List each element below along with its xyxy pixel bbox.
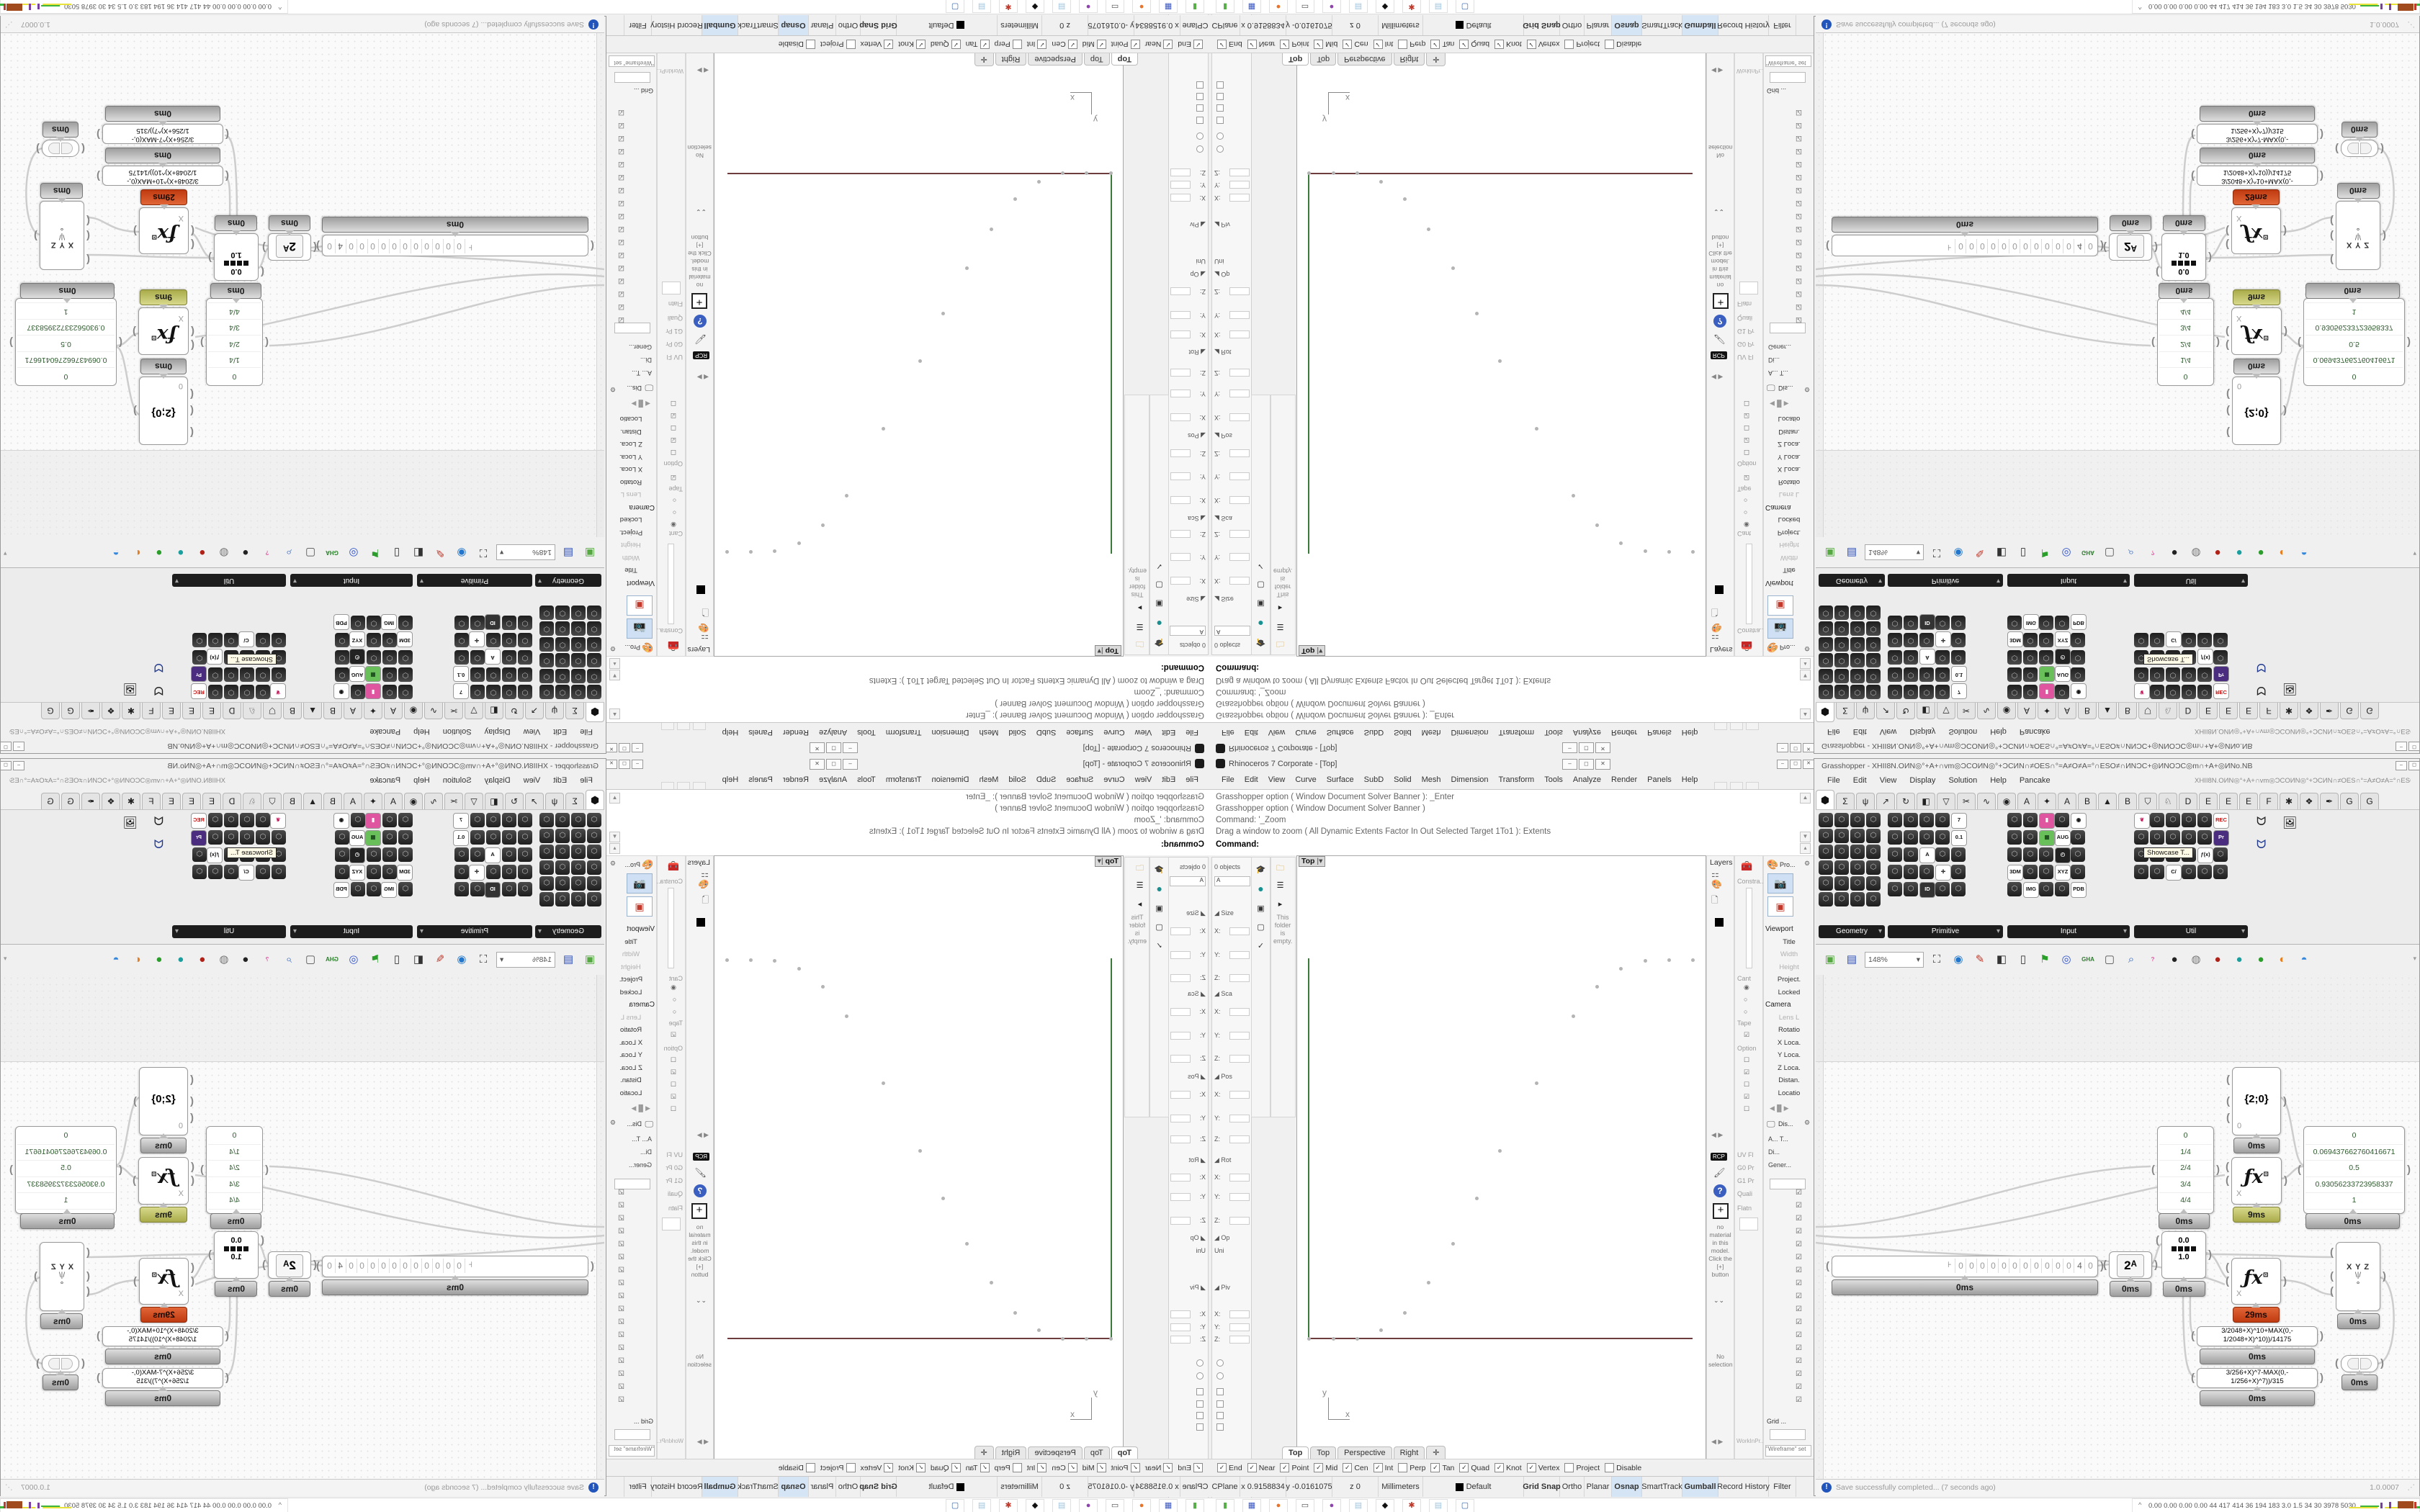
display-checkbox[interactable]: ☑ — [1796, 1202, 1802, 1210]
gh-tab-4[interactable]: ↻ — [1896, 703, 1915, 719]
display-checkbox[interactable]: ☑ — [618, 251, 624, 258]
component-icon[interactable]: ⬡ — [2039, 865, 2053, 879]
status-filter[interactable]: Filter — [1769, 1477, 1796, 1497]
component-icon[interactable]: ⬡ — [1850, 845, 1865, 859]
sketch-pen-icon[interactable]: ✎ — [1971, 544, 1989, 561]
viewport-tab-top[interactable]: Top — [1111, 1446, 1138, 1459]
easel-icon[interactable]: 🖼 — [123, 682, 138, 696]
gh-tab-17[interactable]: ♘ — [243, 793, 261, 809]
component-icon[interactable]: ⬡ — [1888, 685, 1902, 699]
gh-tab-15[interactable]: B — [283, 793, 302, 809]
panel-scroll-arrows[interactable]: ◀ ▶ — [697, 373, 709, 381]
boxedit-input[interactable] — [1229, 1091, 1250, 1099]
rhino-menu-analyze[interactable]: Analyze — [1573, 723, 1601, 737]
notepad-icon[interactable]: ▤ — [1349, 0, 1368, 13]
monitor-icon[interactable]: ▭ — [1296, 1499, 1314, 1512]
component-icon[interactable]: ⬡ — [539, 813, 554, 827]
new-doc-icon[interactable]: ▣ — [581, 544, 599, 561]
component-icon[interactable]: ⬡ — [224, 633, 238, 647]
new-doc-icon[interactable]: ▣ — [1821, 951, 1839, 968]
gh-menu-edit[interactable]: Edit — [553, 776, 567, 785]
component-icon[interactable]: ⬡ — [571, 813, 586, 827]
component-icon[interactable]: ⬡ — [539, 860, 554, 875]
gh-tab-26[interactable]: G — [61, 793, 80, 809]
display-checkbox[interactable]: ☑ — [1796, 121, 1802, 129]
status-gumball[interactable]: Gumball — [1682, 15, 1718, 35]
component-icon[interactable]: ⬡ — [587, 813, 601, 827]
component-icon[interactable]: ⬡ — [2023, 650, 2038, 665]
minimize-button[interactable]: – — [1562, 742, 1577, 753]
component-icon[interactable]: ⬡ — [571, 845, 586, 859]
osnap-item[interactable]: ✓Mid — [1314, 1463, 1337, 1472]
boxedit-input[interactable] — [1170, 1135, 1191, 1143]
component-icon[interactable]: ⬡ — [571, 621, 586, 636]
boxedit-dropdown[interactable]: A — [1214, 876, 1250, 886]
component-icon[interactable]: ⬡ — [2039, 882, 2053, 896]
osnap-item[interactable]: ✓Mid — [1083, 1463, 1106, 1472]
display-checkbox[interactable]: ☑ — [618, 160, 624, 168]
component-icon[interactable]: ƒ(x) — [2197, 649, 2213, 665]
zoom-select[interactable]: 148%▾ — [1865, 952, 1924, 968]
osnap-item[interactable]: ✓Knot — [898, 40, 926, 49]
layer-color-icon[interactable]: 🎨 — [698, 879, 709, 889]
zoom-dollar-icon[interactable]: ⌕ — [2123, 544, 2140, 561]
layer-swatch-black[interactable] — [1715, 585, 1724, 594]
status-cplane[interactable]: CPlane — [1180, 1477, 1210, 1497]
gh-tab-26[interactable]: G — [2340, 703, 2359, 719]
wireframe-set-box[interactable]: "Wireframe" set — [1765, 1445, 1811, 1457]
gh-tab-15[interactable]: B — [2118, 793, 2137, 809]
gh-tab-0[interactable]: ⬢ — [586, 790, 604, 809]
command-scroll-button[interactable]: ▴ — [609, 658, 620, 669]
component-icon[interactable]: 3DM — [397, 631, 413, 647]
floppy64-icon[interactable]: ▦ — [1242, 0, 1261, 13]
gh-tab-9[interactable]: ◉ — [1997, 703, 2016, 719]
maximize-button[interactable]: ◻ — [1790, 760, 1801, 769]
gha-icon[interactable]: GHA — [323, 951, 341, 968]
gh-tab-19[interactable]: E — [202, 793, 221, 809]
boxedit-input[interactable] — [1170, 168, 1191, 176]
boxedit-input[interactable] — [1170, 927, 1191, 935]
glasses-icon-1[interactable]: ᗢ — [154, 816, 163, 829]
cap-icon[interactable]: 🎓 — [1255, 636, 1267, 647]
boxedit-input[interactable] — [1229, 1055, 1250, 1063]
component-icon[interactable]: ID — [485, 614, 501, 630]
toolbar-overflow[interactable]: ▾ — [4, 955, 7, 963]
rhino-menu-tools[interactable]: Tools — [1544, 723, 1563, 737]
display-dropdown[interactable] — [614, 323, 650, 333]
component-icon[interactable]: ✛ — [469, 631, 485, 647]
gh-tab-6[interactable]: ▽ — [1937, 703, 1955, 719]
rhino-window-buttons[interactable]: –◻✕ — [606, 743, 643, 752]
component-icon[interactable]: 3DM — [2007, 865, 2023, 881]
display-checkbox[interactable]: ☑ — [618, 1357, 624, 1365]
rhino-menu-dimension[interactable]: Dimension — [932, 775, 969, 789]
gh-tab-21[interactable]: E — [2239, 703, 2258, 719]
osnap-item[interactable]: ✓End — [1217, 1463, 1242, 1472]
status-millimeters[interactable]: Millimeters — [1379, 1477, 1423, 1497]
boxedit-input[interactable] — [1229, 577, 1250, 585]
panel-scroll-arrows-bottom[interactable]: ◀ ▶ — [1711, 66, 1723, 74]
display-gear-icon[interactable]: ⚙ — [1804, 385, 1810, 393]
gh-component-pow[interactable]: ()2ᴬ — [2109, 233, 2152, 261]
component-icon[interactable]: A — [485, 649, 501, 665]
component-icon[interactable]: ⬡ — [518, 685, 532, 699]
boxedit-input[interactable] — [1170, 181, 1191, 189]
save-icon[interactable]: ▤ — [560, 544, 577, 561]
display-checkbox[interactable]: ☑ — [618, 1370, 624, 1378]
rhino-menu-edit[interactable]: Edit — [1245, 775, 1258, 789]
floppy64-icon[interactable]: ▦ — [1159, 1499, 1178, 1512]
gh-tab-0[interactable]: ⬢ — [1816, 790, 1834, 809]
monitor-icon[interactable]: ▭ — [1296, 0, 1314, 13]
component-icon[interactable]: ⬡ — [2039, 616, 2053, 630]
gh-tab-17[interactable]: ♘ — [2159, 793, 2177, 809]
rhino-menu-transform[interactable]: Transform — [1499, 723, 1535, 737]
speaker-icon[interactable]: ▯ — [388, 951, 405, 968]
material-help-icon[interactable]: ? — [1713, 315, 1726, 328]
component-icon[interactable]: ⬡ — [1866, 685, 1881, 699]
component-icon[interactable]: REC — [191, 813, 207, 829]
component-icon[interactable]: ⬡ — [2039, 847, 2053, 862]
component-icon[interactable]: XYZ — [349, 631, 365, 647]
component-icon[interactable]: ▦ — [2039, 830, 2055, 846]
gh-tab-19[interactable]: E — [2199, 793, 2218, 809]
rhino-menu-tools[interactable]: Tools — [1544, 775, 1563, 789]
gh-tab-19[interactable]: E — [202, 703, 221, 719]
gh-tab-13[interactable]: B — [323, 703, 342, 719]
gh-tab-12[interactable]: A — [2058, 793, 2076, 809]
rhino-menu-panels[interactable]: Panels — [1647, 775, 1672, 789]
component-icon[interactable]: REC — [191, 683, 207, 699]
preview-red-icon[interactable]: ● — [2209, 544, 2226, 561]
gh-tab-8[interactable]: ∿ — [1977, 703, 1996, 719]
material-add-button[interactable]: + — [691, 1203, 707, 1219]
component-icon[interactable]: IMG — [2023, 614, 2039, 630]
component-icon[interactable]: ⬡ — [1850, 653, 1865, 667]
component-icon[interactable]: ⬡ — [571, 606, 586, 620]
boxedit-radio[interactable] — [1216, 145, 1224, 153]
component-icon[interactable]: ⬡ — [1866, 892, 1881, 906]
component-icon[interactable]: ◴ — [349, 847, 365, 863]
expand-icon[interactable]: ▸ — [1274, 602, 1286, 613]
viewport-top[interactable]: Top |▾yx — [1296, 855, 1706, 1485]
component-icon[interactable]: ⬡ — [1850, 606, 1865, 620]
rhino-menu-subd[interactable]: SubD — [1036, 775, 1057, 789]
gh-component-fx[interactable]: ()ƒx⊡X( — [2231, 1258, 2281, 1305]
status-cplane[interactable]: CPlane — [1210, 15, 1240, 35]
firefox-icon[interactable]: ● — [1132, 1499, 1151, 1512]
command-scroll-button[interactable]: ▴ — [1800, 658, 1811, 669]
minimize-button[interactable]: – — [632, 760, 643, 769]
component-icon[interactable]: ⬡ — [539, 685, 554, 699]
status-smarttrack[interactable]: SmartTrack — [738, 1477, 778, 1497]
rhino-menu-analyze[interactable]: Analyze — [819, 723, 847, 737]
layer-new-icon[interactable]: ⚏ — [701, 633, 709, 643]
component-icon[interactable]: ⬡ — [2134, 667, 2148, 682]
component-icon[interactable]: ⬡ — [587, 860, 601, 875]
display-checkbox[interactable]: ☑ — [1796, 1331, 1802, 1339]
component-icon[interactable]: ⬡ — [555, 845, 570, 859]
component-icon[interactable]: ⬡ — [539, 829, 554, 843]
component-icon[interactable]: ⬡ — [1819, 829, 1833, 843]
rhino-menu-view[interactable]: View — [1268, 723, 1286, 737]
display-checkbox[interactable]: ☑ — [1796, 186, 1802, 194]
command-scroll-button[interactable]: ▲ — [609, 708, 620, 719]
gh-tab-22[interactable]: F — [142, 793, 161, 809]
gh-tab-13[interactable]: B — [2078, 793, 2097, 809]
boxedit-input[interactable] — [1170, 951, 1191, 959]
constraints-check[interactable]: ☐ — [671, 423, 676, 431]
component-icon[interactable]: ⬡ — [2213, 865, 2228, 879]
glasses-icon-1[interactable]: ᗢ — [154, 683, 163, 696]
rhino-menu-transform[interactable]: Transform — [886, 775, 922, 789]
gh-tab-20[interactable]: E — [2219, 703, 2238, 719]
status-filter[interactable]: Filter — [624, 15, 651, 35]
component-icon[interactable]: ⬡ — [2182, 633, 2196, 647]
preview-eye-icon[interactable]: ◉ — [1950, 951, 1967, 968]
component-icon[interactable]: ⬡ — [224, 685, 238, 699]
boxedit-checkbox[interactable] — [1196, 117, 1204, 124]
rhino-menu-view[interactable]: View — [1268, 775, 1286, 789]
osnap-item[interactable]: ✓Int — [1027, 40, 1047, 49]
boxedit-input[interactable] — [1229, 181, 1250, 189]
gh-tab-25[interactable]: ✒ — [2320, 703, 2339, 719]
constraints-check[interactable]: ☑ — [1744, 436, 1749, 444]
gh-tab-3[interactable]: ↗ — [1876, 793, 1895, 809]
status-gumball[interactable]: Gumball — [702, 15, 738, 35]
avatar-icon[interactable]: ● — [1079, 1499, 1098, 1512]
component-icon[interactable]: ⬡ — [1888, 830, 1902, 845]
gh-menu-view[interactable]: View — [1880, 727, 1897, 736]
constraints-check[interactable]: ☑ — [1744, 1093, 1749, 1101]
component-icon[interactable]: REC — [2213, 813, 2229, 829]
constraints-radio[interactable]: ○ — [673, 497, 676, 504]
toolbar-overflow[interactable]: ▾ — [2413, 955, 2416, 963]
component-icon[interactable]: PDB — [2071, 614, 2087, 630]
component-icon[interactable]: ⬡ — [555, 606, 570, 620]
boxedit-checkbox[interactable] — [1216, 1400, 1224, 1408]
preview-eye-icon[interactable]: ◉ — [453, 544, 470, 561]
osnap-item[interactable]: ✓Knot — [898, 1463, 926, 1472]
palette-bar-primitive[interactable]: Primitive▾ — [417, 574, 532, 587]
boxedit-input[interactable] — [1229, 496, 1250, 504]
component-icon[interactable]: ⬡ — [398, 667, 413, 682]
component-icon[interactable]: ⬡ — [2166, 667, 2180, 682]
component-icon[interactable]: ✛ — [1935, 631, 1951, 647]
boxedit-checkbox[interactable] — [1196, 1388, 1204, 1395]
component-icon[interactable]: ⬡ — [256, 633, 270, 647]
component-icon[interactable]: ⬡ — [2197, 865, 2212, 879]
osnap-item[interactable]: Perp — [995, 40, 1022, 49]
status-grid-snap[interactable]: Grid Snap — [860, 15, 896, 35]
gh-tab-3[interactable]: ↗ — [1876, 703, 1895, 719]
gh-tab-12[interactable]: A — [344, 793, 362, 809]
material-brush-icon[interactable]: 🖌 — [1713, 1167, 1726, 1179]
component-icon[interactable]: ⬡ — [1935, 650, 1950, 665]
component-icon[interactable]: ⬡ — [382, 830, 397, 845]
component-icon[interactable]: ⬡ — [502, 830, 516, 845]
linked-rings-icon[interactable]: ◎ — [345, 544, 362, 561]
gh-tab-20[interactable]: E — [182, 793, 201, 809]
component-icon[interactable]: ⬡ — [539, 845, 554, 859]
toolbar-overflow[interactable]: ▾ — [2413, 549, 2416, 557]
component-icon[interactable]: ⬡ — [2023, 667, 2038, 682]
component-icon[interactable]: ⬡ — [502, 667, 516, 682]
sketch-pen-icon[interactable]: ✎ — [431, 544, 449, 561]
display-checkbox[interactable]: ☑ — [1796, 302, 1802, 310]
gear-red-icon[interactable]: ✱ — [1402, 1499, 1421, 1512]
sketch-pen-icon[interactable]: ✎ — [1971, 951, 1989, 968]
gh-component-grad[interactable]: ()0.01.0 — [2161, 233, 2206, 281]
component-icon[interactable]: XYZ — [2055, 631, 2071, 647]
gh-menu-file[interactable]: File — [580, 727, 593, 736]
component-icon[interactable]: ⬡ — [1834, 606, 1849, 620]
constraints-radio[interactable]: ○ — [1744, 509, 1747, 516]
waypoint-icon[interactable]: ⚑ — [367, 951, 384, 968]
component-icon[interactable]: ⬡ — [1834, 892, 1849, 906]
display-dropdown[interactable] — [1770, 323, 1806, 333]
boxedit-input[interactable] — [1229, 168, 1250, 176]
component-icon[interactable]: ✛ — [469, 865, 485, 881]
sketch-page-icon[interactable]: ▢ — [2101, 544, 2118, 561]
display-checkbox[interactable]: ☑ — [1796, 1241, 1802, 1248]
check-icon[interactable]: ✓ — [1255, 941, 1267, 952]
component-icon[interactable]: ⬡ — [1866, 829, 1881, 843]
component-icon[interactable]: ⬡ — [502, 685, 516, 699]
notepad2-icon[interactable]: ▤ — [1429, 0, 1448, 13]
sphere-icon[interactable]: ● — [1255, 883, 1267, 894]
component-icon[interactable]: ⬡ — [272, 830, 286, 845]
rhino-menu-curve[interactable]: Curve — [1103, 723, 1124, 737]
maximize-button[interactable]: ◻ — [619, 743, 630, 752]
layer-page-icon[interactable]: 🗋 — [1711, 603, 1718, 618]
component-icon[interactable]: ⬡ — [208, 813, 223, 827]
component-icon[interactable]: ⬡ — [1866, 669, 1881, 683]
layer-swatch-black[interactable] — [696, 918, 705, 927]
component-icon[interactable]: ⬡ — [2055, 616, 2069, 630]
rhino-menu-panels[interactable]: Panels — [1647, 723, 1672, 737]
gh-menu-solution[interactable]: Solution — [443, 727, 472, 736]
component-icon[interactable]: ⬡ — [1819, 845, 1833, 859]
vertical-slider[interactable] — [668, 888, 674, 968]
easel-icon[interactable]: 🖼 — [2282, 682, 2297, 696]
component-icon[interactable]: ⬡ — [1850, 621, 1865, 636]
component-icon[interactable]: ⬡ — [1850, 685, 1865, 699]
properties-tab-icon[interactable]: 🎨 — [642, 642, 653, 653]
constraints-radio[interactable]: ○ — [673, 1008, 676, 1015]
camera-properties-button[interactable]: 📷 — [627, 873, 653, 894]
materials-collapse-icon[interactable]: ⌄⌄ — [1713, 207, 1724, 215]
gh-component-param[interactable]: (){2;0}0(( — [139, 1067, 188, 1135]
component-icon[interactable]: ⬡ — [539, 669, 554, 683]
gh-tab-13[interactable]: B — [2078, 703, 2097, 719]
component-icon[interactable]: ⬡ — [224, 667, 238, 682]
component-icon[interactable]: ⬡ — [1866, 653, 1881, 667]
display-gear-icon[interactable]: ⚙ — [610, 385, 616, 393]
gh-tab-0[interactable]: ⬢ — [1816, 703, 1834, 722]
boxedit-input[interactable] — [1229, 1217, 1250, 1225]
mode-blue-icon[interactable]: ◓ — [107, 544, 125, 561]
boxedit-checkbox[interactable] — [1196, 1423, 1204, 1431]
component-icon[interactable]: ❦ — [2134, 683, 2150, 699]
panel-scroll-arrows[interactable]: ◀ ▶ — [1711, 373, 1723, 381]
notepad-icon[interactable]: ▤ — [1052, 0, 1071, 13]
palette-bar-geometry[interactable]: Geometry▾ — [535, 925, 601, 938]
gh-component-fx[interactable]: ()ƒx⊡X( — [138, 307, 189, 355]
boxedit-input[interactable] — [1170, 330, 1191, 338]
display-tab-icon[interactable]: 🖵 — [1767, 382, 1775, 393]
component-icon[interactable]: ⬡ — [1888, 667, 1902, 682]
box-icon[interactable]: ▢ — [1153, 922, 1165, 933]
glasses-icon-2[interactable]: ᗢ — [2257, 660, 2266, 673]
palette-bar-input[interactable]: Input▾ — [290, 925, 413, 938]
display-checkbox[interactable]: ☑ — [1796, 1318, 1802, 1326]
gh-tab-9[interactable]: ◉ — [404, 793, 423, 809]
status-grid-snap[interactable]: Grid Snap — [1524, 1477, 1560, 1497]
osnap-item[interactable]: ✓Vertex — [861, 40, 894, 49]
gh-component-expr[interactable]: ()3/256+X)^7-MAX(0,-1/256+X)^7))/315 — [102, 124, 223, 144]
rhino-menu-dimension[interactable]: Dimension — [932, 723, 969, 737]
palette-bar-primitive[interactable]: Primitive▾ — [1888, 574, 2003, 587]
constraints-icon[interactable]: 🧰 — [1741, 640, 1752, 652]
component-icon[interactable]: ⬡ — [1904, 616, 1918, 630]
material-add-button[interactable]: + — [1713, 293, 1729, 309]
boxedit-input[interactable] — [1229, 1174, 1250, 1182]
rhino-menu-help[interactable]: Help — [1682, 723, 1698, 737]
gh-menu-solution[interactable]: Solution — [1948, 727, 1977, 736]
component-icon[interactable]: ⬡ — [208, 667, 223, 682]
component-icon[interactable]: ⬡ — [1819, 606, 1833, 620]
panel-scroll-arrows[interactable]: ◀ ▶ — [697, 1131, 709, 1139]
viewport-tab-perspective[interactable]: Perspective — [1337, 53, 1391, 66]
zoom-dollar-icon[interactable]: ⌕ — [2123, 951, 2140, 968]
component-icon[interactable]: ⬡ — [1904, 882, 1918, 896]
minimize-button[interactable]: – — [843, 742, 858, 753]
boxedit-input[interactable] — [1229, 194, 1250, 202]
hamburger-icon[interactable]: ☰ — [1134, 621, 1146, 631]
display-checkbox[interactable]: ☑ — [1796, 1254, 1802, 1261]
gh-tab-16[interactable]: ⛉ — [2138, 793, 2157, 809]
gh-resize-grip[interactable]: ⋰ — [2408, 1483, 2416, 1492]
rhino-menu-surface[interactable]: Surface — [1327, 723, 1354, 737]
gh-menu-pancake[interactable]: Pancake — [2020, 776, 2051, 785]
component-icon[interactable]: ⬡ — [1888, 882, 1902, 896]
component-icon[interactable]: ⬡ — [454, 616, 469, 630]
status-planar[interactable]: Planar — [808, 15, 835, 35]
osnap-item[interactable]: ✓Quad — [931, 40, 961, 49]
viewport-tab-✛[interactable]: ✛ — [974, 53, 994, 66]
gh-menu-display[interactable]: Display — [1909, 776, 1935, 785]
properties-gear-icon[interactable]: ⚙ — [610, 644, 616, 652]
properties-tab-icon[interactable]: 🎨 — [642, 859, 653, 870]
display-checkbox[interactable]: ☑ — [618, 264, 624, 271]
component-icon[interactable]: ⬡ — [502, 813, 516, 827]
boxedit-input[interactable] — [1170, 974, 1191, 982]
rhino-menu-help[interactable]: Help — [722, 775, 739, 789]
gh-menu-help[interactable]: Help — [413, 776, 430, 785]
component-icon[interactable]: ⬡ — [486, 865, 501, 879]
constraints-check[interactable]: ☑ — [671, 1068, 676, 1076]
display-checkbox[interactable]: ☑ — [618, 1241, 624, 1248]
component-icon[interactable]: ⬡ — [1919, 633, 1934, 647]
gh-tab-11[interactable]: ✦ — [2038, 793, 2056, 809]
gh-tab-24[interactable]: ❖ — [102, 793, 120, 809]
gh-component-dial[interactable]: ()0000000000040⊦ — [1832, 235, 2098, 256]
status-record-history[interactable]: Record History — [651, 15, 702, 35]
display-checkbox[interactable]: ☑ — [1796, 1292, 1802, 1300]
waypoint-icon[interactable]: ⚑ — [2036, 951, 2053, 968]
